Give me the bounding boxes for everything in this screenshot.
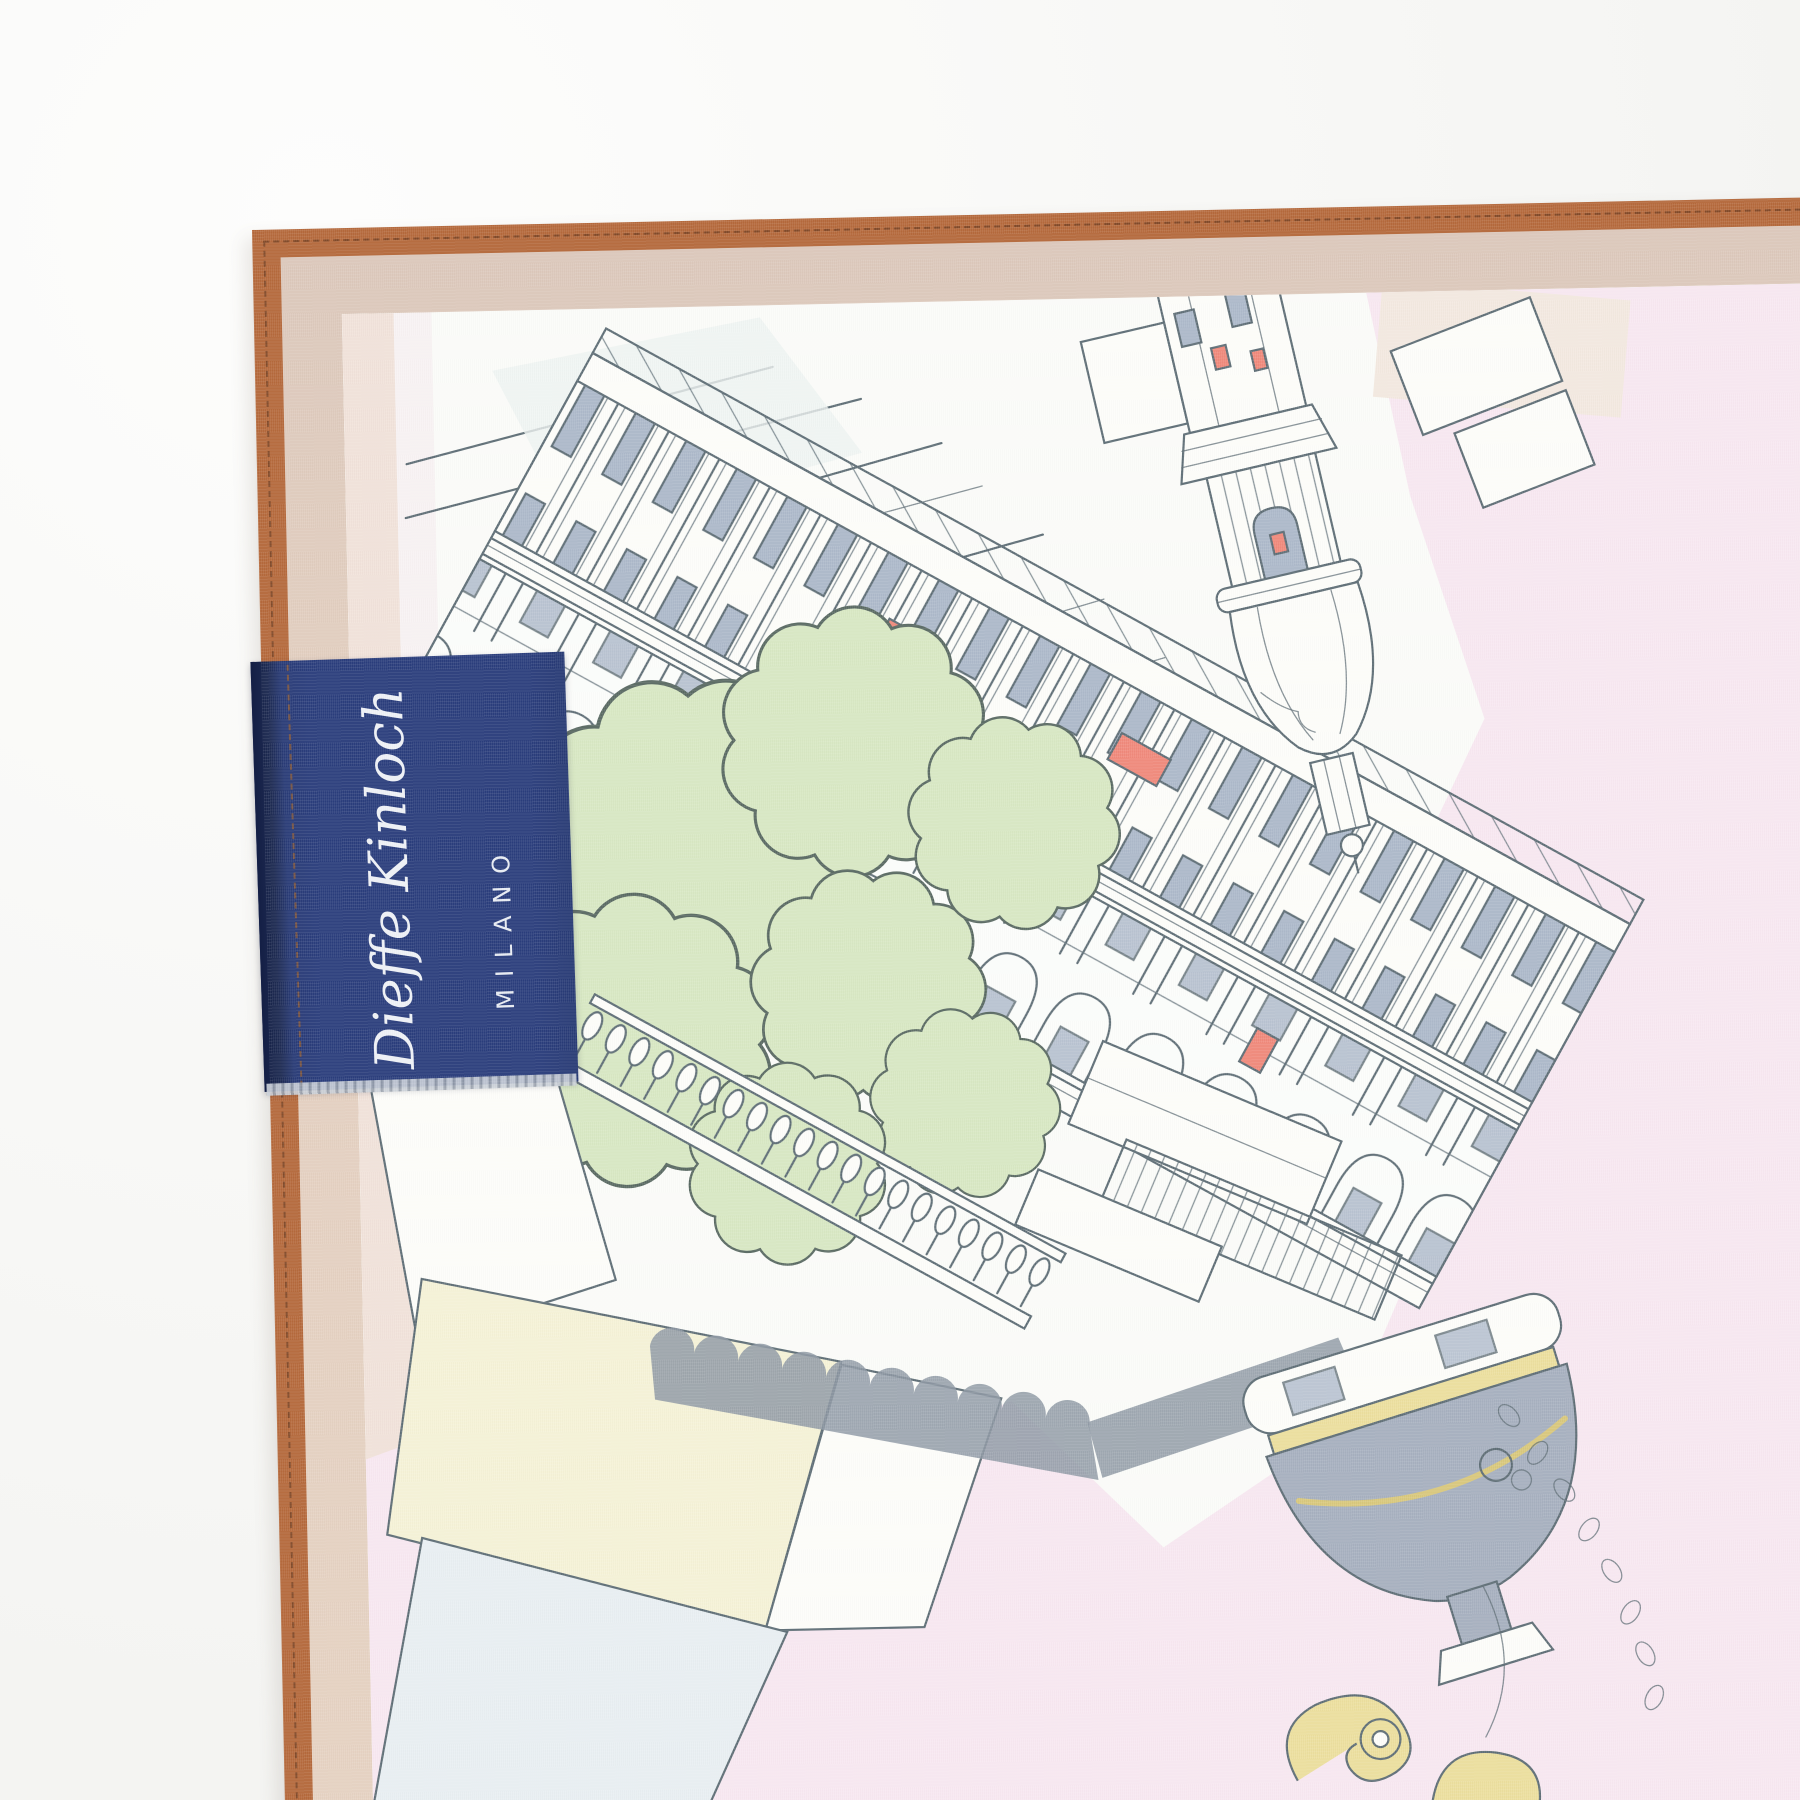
brand-label: Dieffe Kinloch MILANO [250, 652, 578, 1092]
brand-city-text: MILANO [487, 841, 521, 1010]
label-text-art: Dieffe Kinloch MILANO [250, 652, 578, 1092]
handkerchief: Dieffe Kinloch MILANO [252, 196, 1800, 1800]
photo-backdrop: Dieffe Kinloch MILANO [0, 0, 1800, 1800]
brand-script-text: Dieffe Kinloch [351, 687, 427, 1072]
